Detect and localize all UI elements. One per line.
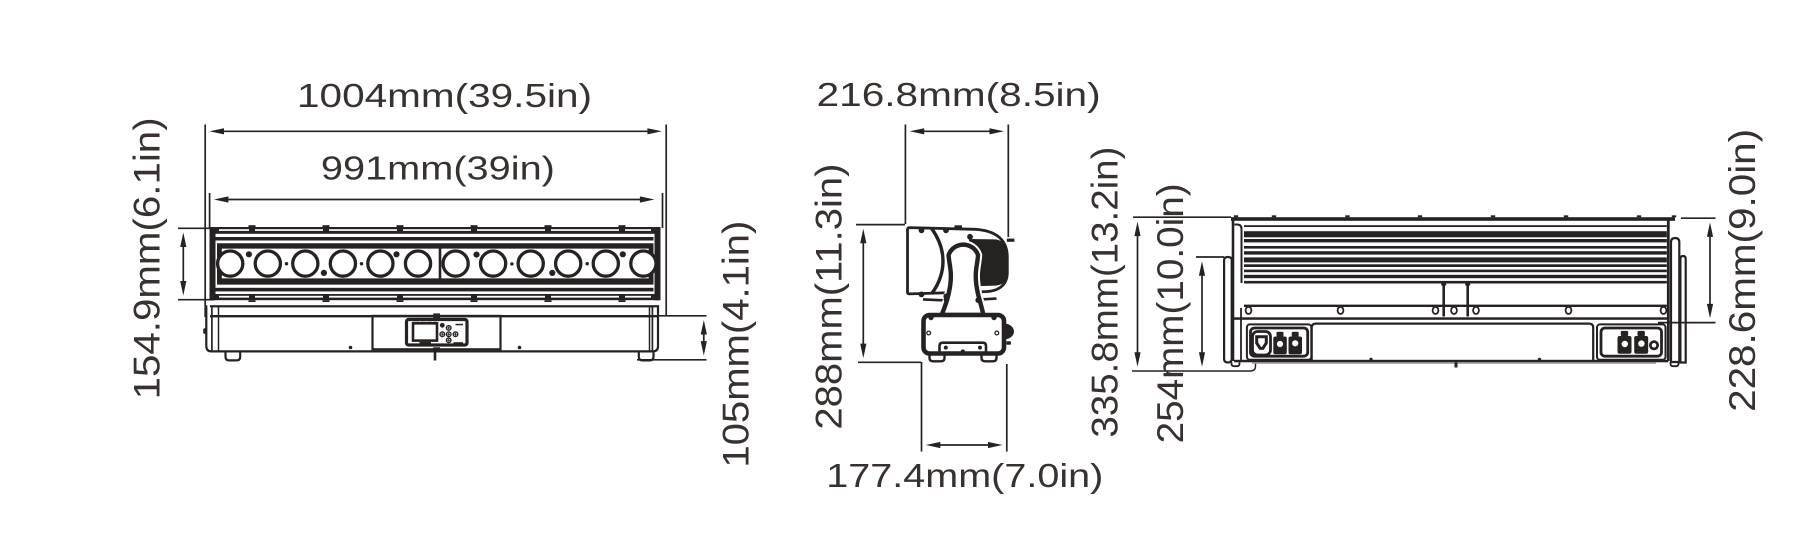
svg-text:254mm(10.0in): 254mm(10.0in)	[1150, 183, 1191, 443]
svg-text:288mm(11.3in): 288mm(11.3in)	[809, 164, 850, 430]
svg-text:228.6mm(9.0in): 228.6mm(9.0in)	[1722, 129, 1763, 412]
svg-text:991mm(39in): 991mm(39in)	[321, 151, 555, 188]
svg-text:154.9mm(6.1in): 154.9mm(6.1in)	[127, 117, 168, 399]
svg-text:177.4mm(7.0in): 177.4mm(7.0in)	[826, 458, 1103, 495]
svg-text:216.8mm(8.5in): 216.8mm(8.5in)	[817, 77, 1101, 114]
svg-text:105mm(4.1in): 105mm(4.1in)	[716, 221, 757, 468]
svg-text:335.8mm(13.2in): 335.8mm(13.2in)	[1085, 147, 1126, 438]
svg-text:1004mm(39.5in): 1004mm(39.5in)	[297, 78, 592, 115]
